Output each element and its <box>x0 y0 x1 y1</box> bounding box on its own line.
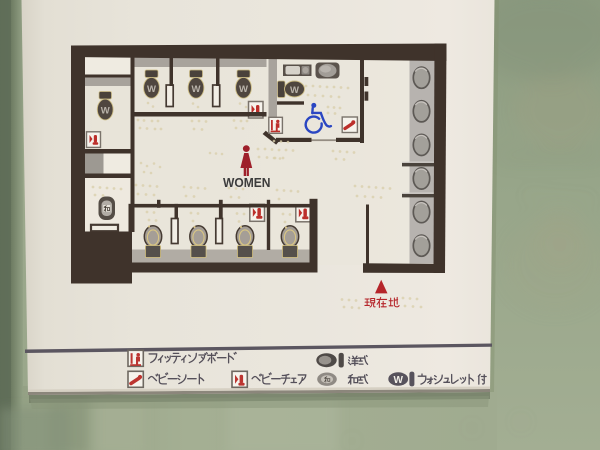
svg-text:W: W <box>290 85 299 96</box>
svg-text:W: W <box>101 106 110 117</box>
svg-text:W: W <box>239 84 248 95</box>
svg-text:W: W <box>393 375 403 386</box>
svg-text:W: W <box>192 84 201 95</box>
svg-text:W: W <box>147 84 156 95</box>
